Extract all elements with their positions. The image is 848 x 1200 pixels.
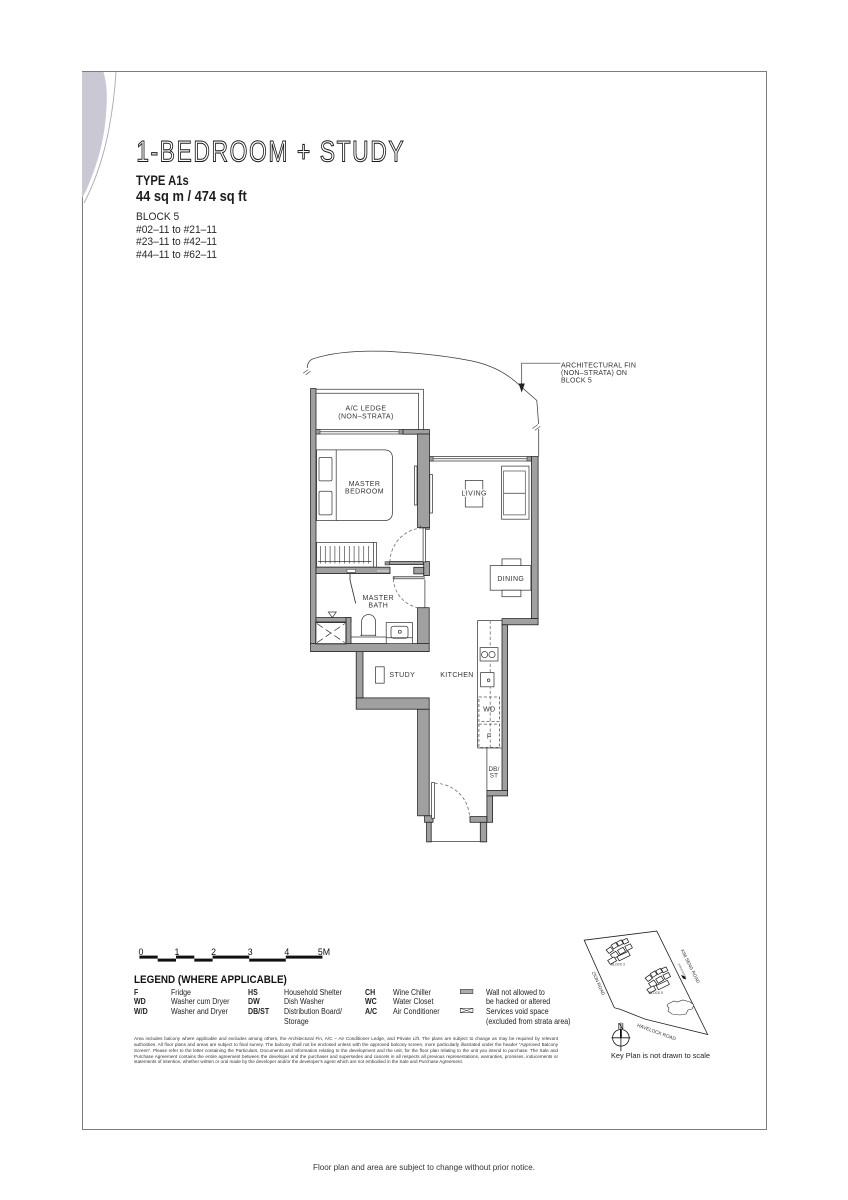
svg-text:F: F bbox=[487, 733, 492, 740]
svg-text:Key Plan is not drawn to scale: Key Plan is not drawn to scale bbox=[611, 1051, 710, 1060]
svg-text:1-BEDROOM + STUDY: 1-BEDROOM + STUDY bbox=[136, 136, 405, 168]
svg-text:BEDROOM: BEDROOM bbox=[345, 489, 384, 496]
svg-text:WD: WD bbox=[483, 707, 495, 714]
svg-text:LIVING: LIVING bbox=[462, 491, 487, 498]
svg-text:A/C LEDGE: A/C LEDGE bbox=[346, 406, 387, 413]
svg-text:MASTER: MASTER bbox=[363, 595, 395, 602]
svg-text:(NON–STRATA): (NON–STRATA) bbox=[338, 414, 394, 421]
svg-text:DINING: DINING bbox=[497, 576, 524, 583]
svg-text:STUDY: STUDY bbox=[389, 672, 415, 679]
svg-text:MASTER: MASTER bbox=[349, 481, 381, 488]
svg-text:BATH: BATH bbox=[368, 603, 388, 610]
svg-text:BLOCK 5: BLOCK 5 bbox=[649, 991, 663, 995]
svg-text:KIM SENG ROAD: KIM SENG ROAD bbox=[680, 949, 701, 985]
svg-text:KITCHEN: KITCHEN bbox=[440, 672, 474, 679]
svg-text:BLOCK 3: BLOCK 3 bbox=[611, 963, 625, 967]
svg-text:(NON–STRATA) ON: (NON–STRATA) ON bbox=[561, 370, 627, 377]
svg-text:ARCHITECTURAL FIN: ARCHITECTURAL FIN bbox=[561, 363, 636, 370]
svg-text:ST: ST bbox=[490, 772, 498, 779]
svg-text:BLOCK 5: BLOCK 5 bbox=[561, 378, 592, 385]
svg-text:N: N bbox=[618, 1021, 624, 1031]
